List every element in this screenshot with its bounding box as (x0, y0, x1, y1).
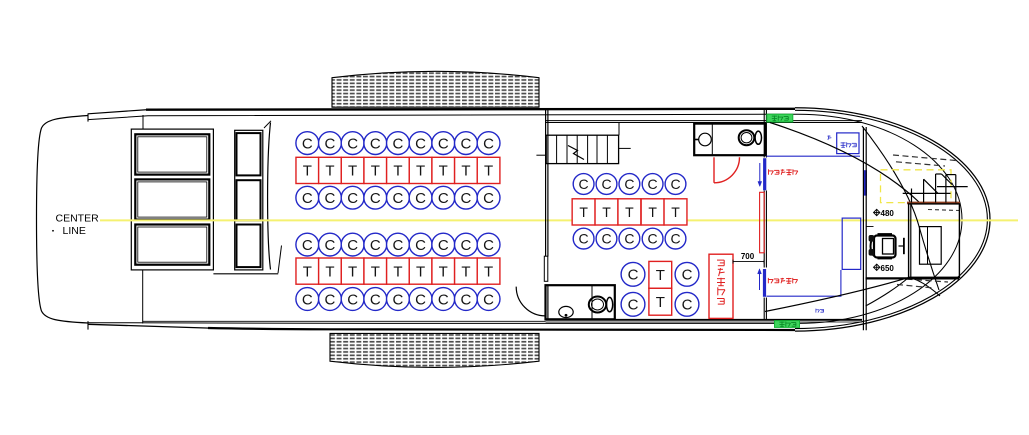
svg-text:T: T (648, 204, 657, 220)
svg-text:C: C (347, 135, 358, 152)
svg-text:C: C (302, 291, 313, 308)
svg-text:C: C (325, 291, 336, 308)
svg-text:CENTER: CENTER (56, 213, 100, 225)
svg-text:C: C (670, 231, 680, 247)
svg-text:T: T (461, 163, 470, 180)
svg-text:C: C (670, 176, 680, 192)
svg-text:C: C (370, 291, 381, 308)
svg-text:C: C (579, 231, 589, 247)
svg-text:T: T (325, 263, 334, 280)
svg-text:C: C (370, 190, 381, 207)
svg-text:T: T (348, 163, 357, 180)
svg-text:C: C (347, 237, 358, 254)
svg-text:C: C (483, 237, 494, 254)
svg-text:C: C (325, 135, 336, 152)
svg-text:C: C (325, 190, 336, 207)
svg-text:T: T (348, 263, 357, 280)
svg-text:C: C (483, 190, 494, 207)
svg-text:C: C (579, 176, 589, 192)
svg-text:LINE: LINE (63, 225, 86, 237)
svg-text:C: C (325, 237, 336, 254)
svg-text:C: C (415, 291, 426, 308)
svg-text:C: C (601, 176, 611, 192)
svg-text:T: T (416, 163, 425, 180)
svg-text:C: C (628, 267, 639, 284)
svg-text:C: C (393, 291, 404, 308)
svg-text:C: C (624, 176, 634, 192)
svg-text:700: 700 (741, 252, 755, 261)
svg-text:C: C (370, 135, 381, 152)
svg-text:T: T (671, 204, 680, 220)
svg-text:C: C (438, 291, 449, 308)
svg-text:C: C (393, 135, 404, 152)
svg-text:C: C (648, 231, 658, 247)
svg-text:C: C (347, 291, 358, 308)
svg-text:C: C (370, 237, 381, 254)
svg-text:C: C (393, 237, 404, 254)
svg-text:T: T (439, 263, 448, 280)
svg-text:C: C (393, 190, 404, 207)
svg-text:T: T (602, 204, 611, 220)
svg-text:T: T (656, 267, 665, 284)
svg-text:C: C (460, 237, 471, 254)
svg-text:C: C (682, 267, 693, 284)
svg-text:C: C (438, 237, 449, 254)
svg-text:C: C (483, 135, 494, 152)
svg-text:T: T (579, 204, 588, 220)
svg-text:T: T (656, 294, 665, 311)
svg-text:T: T (439, 163, 448, 180)
svg-text:T: T (371, 163, 380, 180)
svg-text:C: C (415, 135, 426, 152)
svg-text:T: T (484, 263, 493, 280)
svg-text:T: T (625, 204, 634, 220)
svg-text:C: C (624, 231, 634, 247)
svg-text:650: 650 (881, 264, 895, 273)
svg-text:T: T (393, 263, 402, 280)
svg-text:C: C (628, 297, 639, 314)
svg-text:C: C (682, 297, 693, 314)
svg-text:C: C (302, 190, 313, 207)
svg-text:T: T (303, 263, 312, 280)
svg-text:T: T (393, 163, 402, 180)
svg-text:C: C (648, 176, 658, 192)
svg-text:480: 480 (881, 209, 895, 218)
svg-text:C: C (460, 291, 471, 308)
svg-text:T: T (371, 263, 380, 280)
svg-text:C: C (302, 237, 313, 254)
svg-text:C: C (460, 190, 471, 207)
svg-text:C: C (483, 291, 494, 308)
svg-text:C: C (460, 135, 471, 152)
svg-text:T: T (416, 263, 425, 280)
svg-text:T: T (303, 163, 312, 180)
svg-text:C: C (415, 237, 426, 254)
svg-text:C: C (347, 190, 358, 207)
svg-text:T: T (484, 163, 493, 180)
svg-text:C: C (601, 231, 611, 247)
svg-text:T: T (325, 163, 334, 180)
svg-text:T: T (461, 263, 470, 280)
svg-text:C: C (438, 190, 449, 207)
svg-text:C: C (302, 135, 313, 152)
svg-text:C: C (438, 135, 449, 152)
svg-text:C: C (415, 190, 426, 207)
